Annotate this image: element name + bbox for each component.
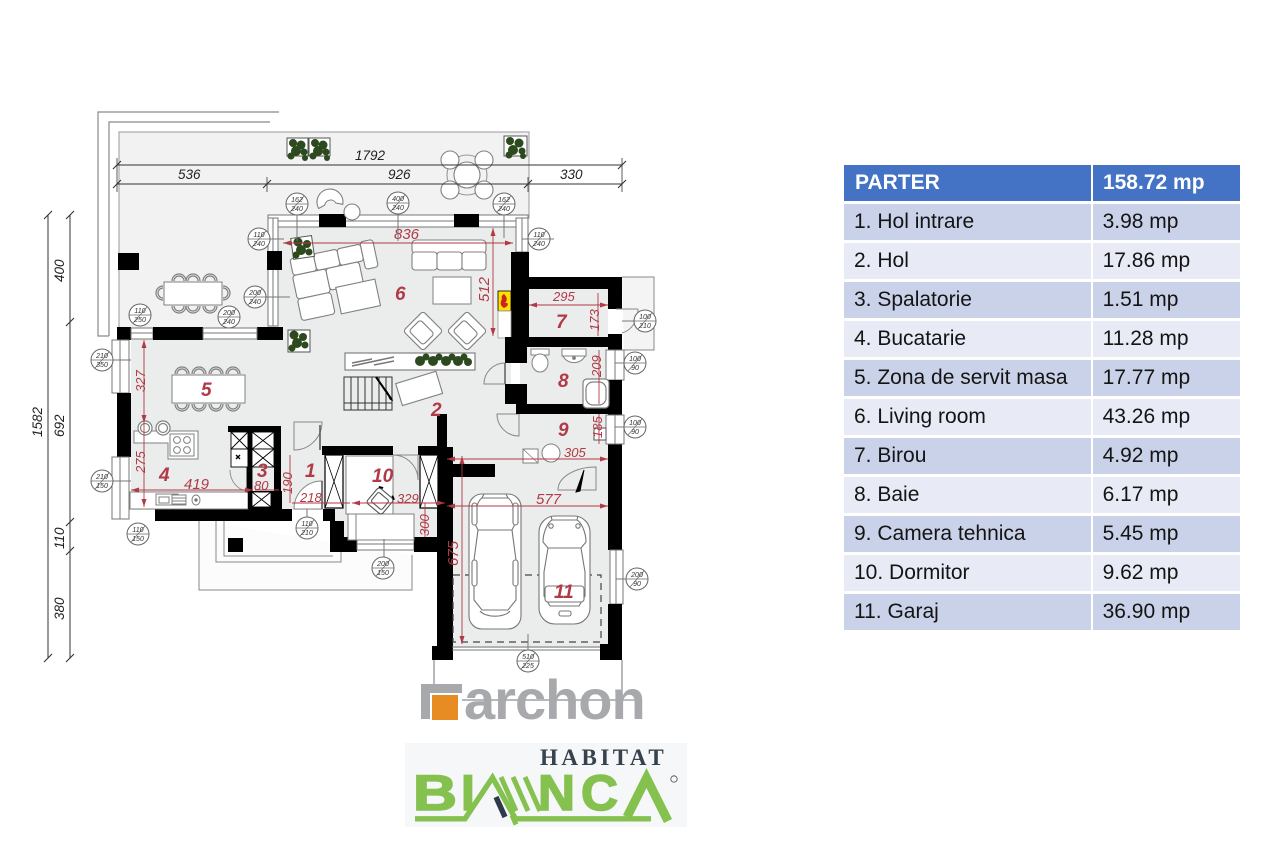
- svg-text:90: 90: [631, 429, 639, 436]
- svg-text:7: 7: [556, 312, 568, 333]
- svg-text:200: 200: [248, 290, 261, 297]
- svg-text:200: 200: [630, 572, 643, 579]
- svg-text:209: 209: [589, 355, 604, 378]
- svg-text:210: 210: [95, 474, 108, 481]
- svg-text:250: 250: [133, 317, 146, 324]
- svg-text:295: 295: [552, 289, 575, 304]
- svg-text:512: 512: [476, 276, 493, 302]
- svg-text:173: 173: [587, 309, 602, 331]
- svg-text:577: 577: [536, 491, 562, 508]
- svg-text:6: 6: [395, 284, 406, 305]
- svg-text:162: 162: [498, 197, 510, 204]
- svg-text:90: 90: [633, 581, 641, 588]
- svg-text:N: N: [538, 765, 575, 821]
- svg-text:240: 240: [252, 241, 265, 248]
- svg-text:90: 90: [631, 365, 639, 372]
- svg-text:162: 162: [291, 197, 303, 204]
- svg-text:240: 240: [391, 205, 404, 212]
- svg-text:675: 675: [445, 540, 462, 566]
- svg-text:150: 150: [132, 536, 144, 543]
- svg-text:210: 210: [300, 530, 313, 537]
- svg-text:100: 100: [629, 356, 641, 363]
- svg-text:400: 400: [392, 196, 404, 203]
- svg-text:305: 305: [564, 445, 586, 460]
- svg-text:1: 1: [305, 461, 316, 482]
- svg-text:C: C: [581, 765, 618, 821]
- svg-text:275: 275: [133, 451, 148, 474]
- svg-text:3: 3: [257, 461, 268, 482]
- svg-text:240: 240: [222, 319, 235, 326]
- svg-text:190: 190: [280, 472, 295, 494]
- svg-text:380: 380: [52, 597, 67, 620]
- svg-text:210: 210: [95, 353, 108, 360]
- svg-text:archon: archon: [464, 668, 645, 731]
- svg-text:240: 240: [248, 299, 261, 306]
- svg-text:110: 110: [301, 521, 312, 528]
- svg-text:200: 200: [376, 561, 389, 568]
- svg-text:926: 926: [388, 167, 411, 182]
- svg-text:110: 110: [134, 308, 145, 315]
- svg-text:692: 692: [52, 414, 67, 437]
- svg-text:419: 419: [184, 476, 210, 493]
- svg-text:400: 400: [52, 259, 67, 282]
- svg-text:2: 2: [430, 400, 442, 421]
- svg-text:150: 150: [377, 570, 389, 577]
- svg-text:327: 327: [133, 370, 148, 392]
- svg-text:1792: 1792: [355, 148, 386, 163]
- svg-text:9: 9: [558, 420, 569, 441]
- svg-text:240: 240: [290, 206, 303, 213]
- svg-text:110: 110: [253, 232, 264, 239]
- svg-text:200: 200: [222, 310, 235, 317]
- svg-text:110: 110: [132, 527, 143, 534]
- svg-text:329: 329: [397, 491, 419, 506]
- svg-text:8: 8: [558, 371, 569, 392]
- svg-text:150: 150: [96, 483, 108, 490]
- svg-text:350: 350: [96, 362, 108, 369]
- svg-text:100: 100: [629, 420, 641, 427]
- svg-text:5: 5: [201, 380, 212, 401]
- svg-text:110: 110: [533, 232, 544, 239]
- svg-text:240: 240: [532, 241, 545, 248]
- svg-text:185: 185: [590, 416, 605, 438]
- svg-text:100: 100: [639, 314, 651, 321]
- svg-text:110: 110: [52, 527, 67, 549]
- svg-text:330: 330: [560, 167, 583, 182]
- svg-text:510: 510: [522, 654, 534, 661]
- svg-text:240: 240: [497, 206, 510, 213]
- svg-text:300: 300: [417, 514, 432, 536]
- svg-text:11: 11: [554, 582, 574, 603]
- svg-text:B: B: [413, 765, 457, 821]
- svg-text:218: 218: [299, 490, 322, 505]
- svg-text:210: 210: [638, 323, 651, 330]
- svg-text:4: 4: [158, 465, 170, 486]
- svg-text:10: 10: [372, 466, 394, 487]
- svg-text:1582: 1582: [30, 406, 45, 437]
- svg-text:536: 536: [178, 167, 201, 182]
